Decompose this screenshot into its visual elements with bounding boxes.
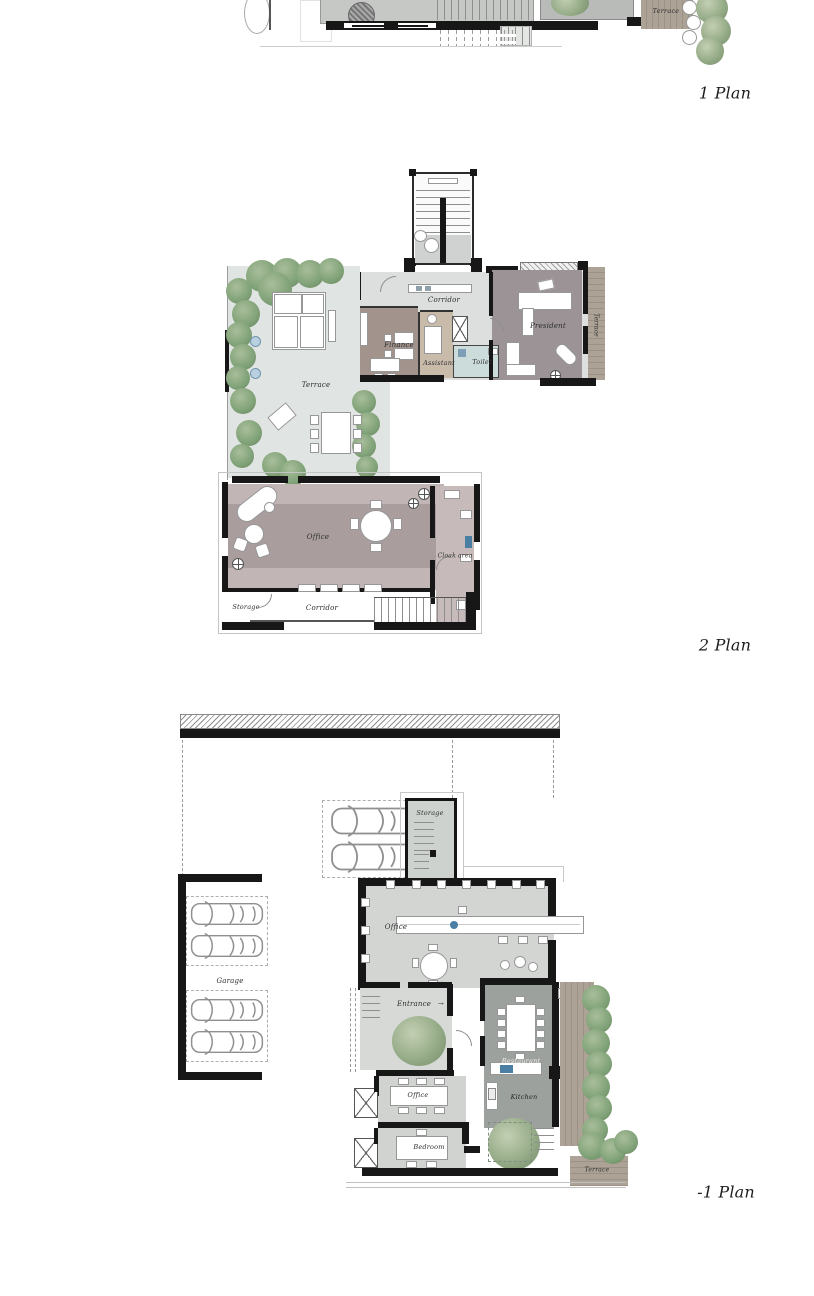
room-label-terrace-left: Terrace	[302, 381, 331, 389]
chair	[416, 1107, 427, 1114]
wall	[178, 874, 262, 882]
wall	[374, 597, 466, 598]
sofa-cushion	[274, 294, 302, 314]
reception-item	[425, 286, 431, 291]
wall	[374, 1076, 378, 1092]
room-label-storage: Storage	[232, 603, 259, 611]
site-dashed-line	[452, 740, 453, 798]
chair	[498, 936, 508, 944]
wall	[374, 1128, 378, 1144]
chair	[515, 996, 525, 1003]
sofa-cushion	[300, 316, 324, 348]
wall	[298, 476, 440, 483]
room-label-entrance: Entrance	[397, 1000, 431, 1008]
wall	[420, 310, 453, 312]
desk	[424, 326, 442, 354]
column	[412, 880, 421, 889]
landing-bench	[428, 178, 458, 184]
site-line	[346, 1182, 626, 1183]
wall	[480, 1036, 485, 1066]
site-dashed-line	[553, 740, 554, 798]
shaft	[354, 1088, 378, 1118]
chair	[310, 415, 319, 425]
chair	[416, 1078, 427, 1085]
chair	[536, 1030, 545, 1038]
dining-table	[506, 1004, 536, 1052]
counter-item	[450, 921, 458, 929]
car	[188, 1028, 266, 1056]
wall	[540, 378, 584, 386]
floor-plan-sheet: Terrace 1 Plan	[0, 0, 814, 1296]
closet	[452, 316, 468, 342]
chair	[398, 1107, 409, 1114]
bench	[320, 584, 338, 592]
chair	[412, 958, 419, 968]
stone	[514, 956, 526, 968]
wall	[430, 486, 435, 538]
site-line	[346, 1187, 626, 1188]
wall	[440, 198, 446, 263]
room-label-toilet: Toilet	[472, 358, 492, 366]
wall	[222, 556, 228, 592]
column	[470, 169, 477, 176]
wall	[462, 1122, 469, 1144]
chair	[518, 936, 528, 944]
car	[188, 932, 266, 960]
sofa-cushion	[302, 294, 324, 314]
desk	[370, 358, 400, 372]
chair	[497, 1008, 506, 1016]
kitchen-appliance	[500, 1065, 513, 1073]
wall	[222, 482, 228, 538]
wall	[376, 1070, 454, 1076]
site-line	[260, 46, 562, 47]
chair	[497, 1030, 506, 1038]
sink	[488, 1088, 496, 1100]
wall	[178, 874, 186, 1080]
chair	[434, 1078, 445, 1085]
wall	[548, 878, 556, 920]
sink	[458, 349, 466, 357]
room-label-finance: Finance	[384, 341, 414, 349]
column	[386, 880, 395, 889]
room-label-corridor: Corridor	[428, 296, 460, 304]
hedge	[226, 366, 250, 390]
side-table	[328, 310, 336, 342]
column	[409, 169, 416, 176]
wall	[447, 1048, 453, 1070]
tree	[696, 37, 724, 65]
target-symbol	[418, 488, 430, 500]
chair	[414, 230, 427, 242]
site-wall-hatch	[180, 714, 560, 729]
wall	[180, 729, 560, 738]
room-label-restaurant: Restaurant	[502, 1057, 541, 1065]
chair	[370, 543, 382, 552]
meeting-table	[360, 510, 392, 542]
chair	[393, 518, 402, 530]
room-label-president: President	[530, 322, 566, 330]
column	[361, 926, 370, 935]
site-line	[563, 866, 564, 882]
column	[512, 880, 521, 889]
site-dashed-line	[182, 740, 183, 876]
wall	[408, 982, 452, 988]
chair	[458, 906, 467, 914]
planter-box	[488, 1122, 532, 1162]
chair	[538, 936, 548, 944]
chair	[398, 1078, 409, 1085]
wall	[384, 23, 398, 28]
table	[420, 952, 448, 980]
chair	[353, 443, 362, 453]
shelf	[460, 510, 472, 519]
hedge	[352, 390, 376, 414]
dining-table	[321, 412, 351, 454]
chair	[536, 1008, 545, 1016]
stairs	[362, 996, 380, 1022]
room-label-corridor-bottom: Corridor	[306, 604, 338, 612]
sofa-cushion	[274, 316, 298, 348]
cloak-item	[465, 536, 472, 548]
chair	[350, 518, 359, 530]
hedge	[230, 444, 254, 468]
chair	[434, 1107, 445, 1114]
dashed-wall	[355, 988, 356, 1072]
site-line	[464, 866, 564, 867]
column	[361, 954, 370, 963]
tree	[392, 1016, 446, 1066]
room-label-terrace-right: Terrace	[593, 313, 600, 336]
chair	[427, 314, 437, 324]
chair	[406, 1161, 417, 1168]
wall	[418, 312, 420, 378]
hedge	[236, 420, 262, 446]
stone	[682, 30, 697, 45]
stairs	[374, 598, 466, 622]
chair	[353, 429, 362, 439]
wall	[358, 306, 418, 308]
counter	[396, 916, 584, 934]
sofa	[506, 364, 536, 376]
counter-line	[400, 924, 580, 925]
entrance-arrow: →	[438, 1000, 444, 1008]
target-symbol	[408, 498, 419, 509]
room-label-assistant: Assistant	[423, 359, 455, 367]
dashed-wall	[350, 988, 351, 1072]
room-label-garage: Garage	[216, 977, 243, 985]
wall	[232, 476, 288, 483]
bench	[364, 584, 382, 592]
column	[437, 880, 446, 889]
room-label-office: Office	[307, 533, 329, 541]
wall	[447, 984, 453, 1016]
reception-item	[416, 286, 422, 291]
room-label-office-small: Office	[408, 1091, 429, 1099]
wall	[222, 622, 284, 630]
wall	[474, 484, 480, 542]
wall	[269, 0, 271, 30]
room-label-bedroom: Bedroom	[413, 1143, 444, 1151]
bench	[342, 584, 360, 592]
wall	[489, 272, 493, 316]
wall	[480, 978, 556, 985]
bench	[298, 584, 316, 592]
column	[536, 880, 545, 889]
wall	[360, 982, 400, 988]
room-label-storage: Storage	[416, 809, 443, 817]
wall	[464, 1146, 480, 1153]
cabinet	[360, 312, 368, 346]
stool	[250, 336, 261, 347]
stairs	[437, 0, 530, 20]
chair	[536, 1019, 545, 1027]
wall	[552, 1079, 559, 1127]
wall	[350, 375, 444, 382]
room-label-office-hall: Office	[385, 923, 407, 931]
plan2-title: 2 Plan	[699, 636, 751, 655]
chair	[450, 958, 457, 968]
stone	[528, 962, 538, 972]
stool	[250, 368, 261, 379]
wall	[578, 261, 588, 270]
stone	[500, 960, 510, 970]
wall	[378, 1122, 466, 1128]
chair	[536, 1041, 545, 1049]
car	[188, 996, 266, 1024]
shelf	[444, 490, 460, 499]
hatch-marks	[440, 30, 516, 47]
chair	[497, 1019, 506, 1027]
room-label-terrace: Terrace	[585, 1167, 610, 1174]
chair	[426, 1161, 437, 1168]
wall	[627, 17, 641, 26]
chair	[497, 1041, 506, 1049]
plan1-title: 1 Plan	[699, 84, 751, 103]
planM1-title: -1 Plan	[697, 1183, 755, 1202]
wall	[430, 850, 436, 857]
room-label-terrace: Terrace	[653, 7, 680, 15]
target-symbol	[232, 558, 244, 570]
stool	[264, 502, 275, 513]
wall	[362, 1168, 558, 1176]
wall	[178, 1072, 262, 1080]
car	[188, 900, 266, 928]
table	[424, 238, 439, 253]
hedge	[318, 258, 344, 284]
column	[462, 880, 471, 889]
room-label-kitchen: Kitchen	[511, 1093, 538, 1101]
tree-outline	[244, 0, 270, 34]
column	[487, 880, 496, 889]
room-label-cloak: Cloak area	[438, 553, 473, 560]
chair	[428, 944, 438, 951]
chair	[416, 1129, 427, 1136]
chair	[310, 443, 319, 453]
stairs	[414, 822, 434, 852]
hedge	[614, 1130, 638, 1154]
stone	[682, 0, 697, 15]
chair	[310, 429, 319, 439]
column	[361, 898, 370, 907]
stairs	[534, 1128, 554, 1152]
chair	[353, 415, 362, 425]
chair	[370, 500, 382, 509]
chair	[384, 350, 392, 358]
wall	[374, 622, 474, 630]
door-arc	[456, 1030, 472, 1046]
hedge	[230, 388, 256, 414]
wall	[480, 985, 485, 1021]
stairs	[414, 854, 429, 874]
wall	[584, 378, 596, 386]
